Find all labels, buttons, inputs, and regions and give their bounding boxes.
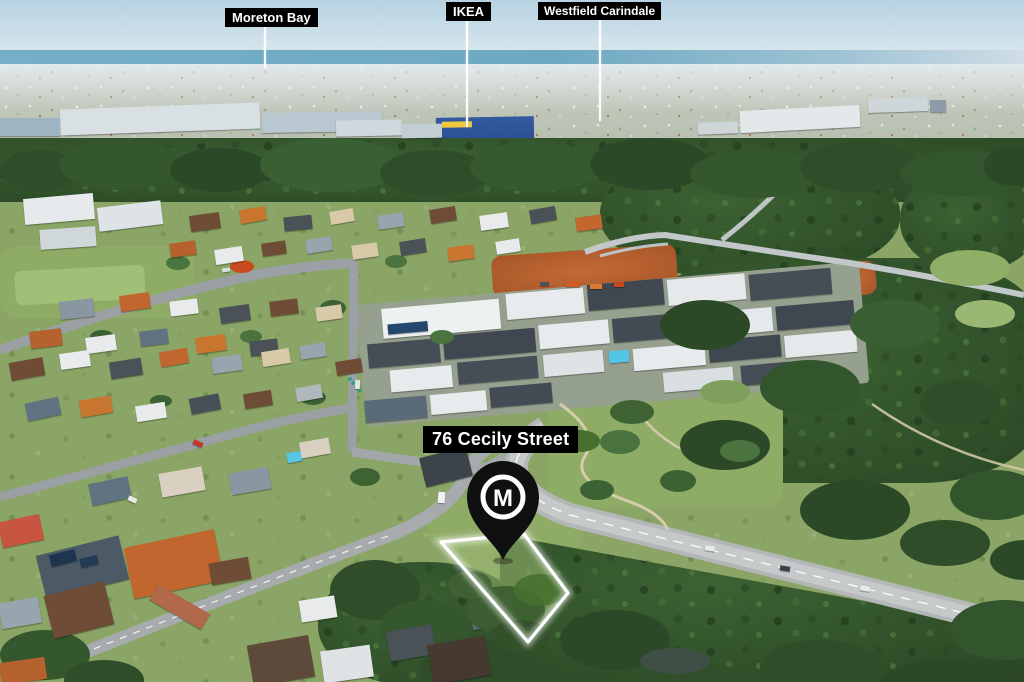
tree-blob [260, 138, 400, 192]
landmark-label-westfield-carindale: Westfield Carindale [538, 2, 661, 20]
car [566, 281, 580, 287]
tree-blob [580, 480, 614, 500]
house-roof [39, 226, 96, 250]
landmark-label-ikea: IKEA [446, 2, 491, 21]
townhouse-roof [538, 319, 610, 349]
tree-blob [470, 142, 600, 192]
aerial-photo: M Moreton Bay IKEA Westfield Carindale 7… [0, 0, 1024, 682]
car [614, 282, 624, 287]
leader-line-ikea [466, 19, 468, 127]
house-roof [402, 124, 442, 139]
tree-blob [900, 520, 990, 566]
townhouse-roof [364, 395, 428, 422]
house-roof [0, 118, 60, 136]
townhouse-roof [389, 365, 453, 392]
tree-blob [660, 300, 750, 350]
townhouse-roof [430, 390, 488, 415]
townhouse-roof [457, 356, 539, 385]
tree-blob [850, 300, 940, 348]
townhouse-roof [505, 287, 585, 320]
tree-blob [690, 150, 820, 198]
tree-blob [800, 480, 910, 540]
leader-line-westfield [599, 18, 601, 121]
townhouse-roof [748, 268, 832, 301]
car [438, 492, 446, 503]
tree-blob [350, 468, 380, 486]
house-roof [868, 97, 928, 113]
tree-blob [430, 330, 454, 344]
landmark-label-moreton-bay: Moreton Bay [225, 8, 318, 27]
house-roof [698, 121, 738, 134]
townhouse-roof [367, 338, 441, 368]
townhouse-roof [784, 330, 858, 358]
townhouse-roof [609, 350, 630, 364]
house-roof [59, 298, 95, 319]
car [540, 282, 549, 286]
car [355, 380, 360, 389]
house-roof [336, 119, 402, 136]
townhouse-roof [489, 382, 553, 407]
tree-blob [930, 250, 1010, 286]
car [590, 284, 602, 289]
tree-blob [760, 360, 860, 415]
tree-blob [660, 470, 696, 492]
tree-blob [610, 400, 654, 424]
leader-line-moreton-bay [264, 27, 266, 68]
townhouse-roof [775, 300, 855, 331]
tree-blob [920, 380, 1000, 426]
tree-blob [170, 148, 270, 192]
tree-blob [385, 255, 407, 268]
house-roof [320, 645, 374, 682]
tree-blob [700, 380, 750, 404]
tree-blob [60, 140, 180, 190]
townhouse-roof [543, 350, 605, 377]
tree-blob [640, 648, 710, 674]
property-address-label: 76 Cecily Street [423, 426, 578, 453]
tree-blob [590, 138, 710, 190]
tree-blob [720, 440, 760, 462]
tree-blob [600, 430, 640, 454]
tree-blob [955, 300, 1015, 328]
house-roof [283, 215, 312, 232]
tree-blob [166, 256, 190, 270]
house-roof [930, 100, 946, 112]
